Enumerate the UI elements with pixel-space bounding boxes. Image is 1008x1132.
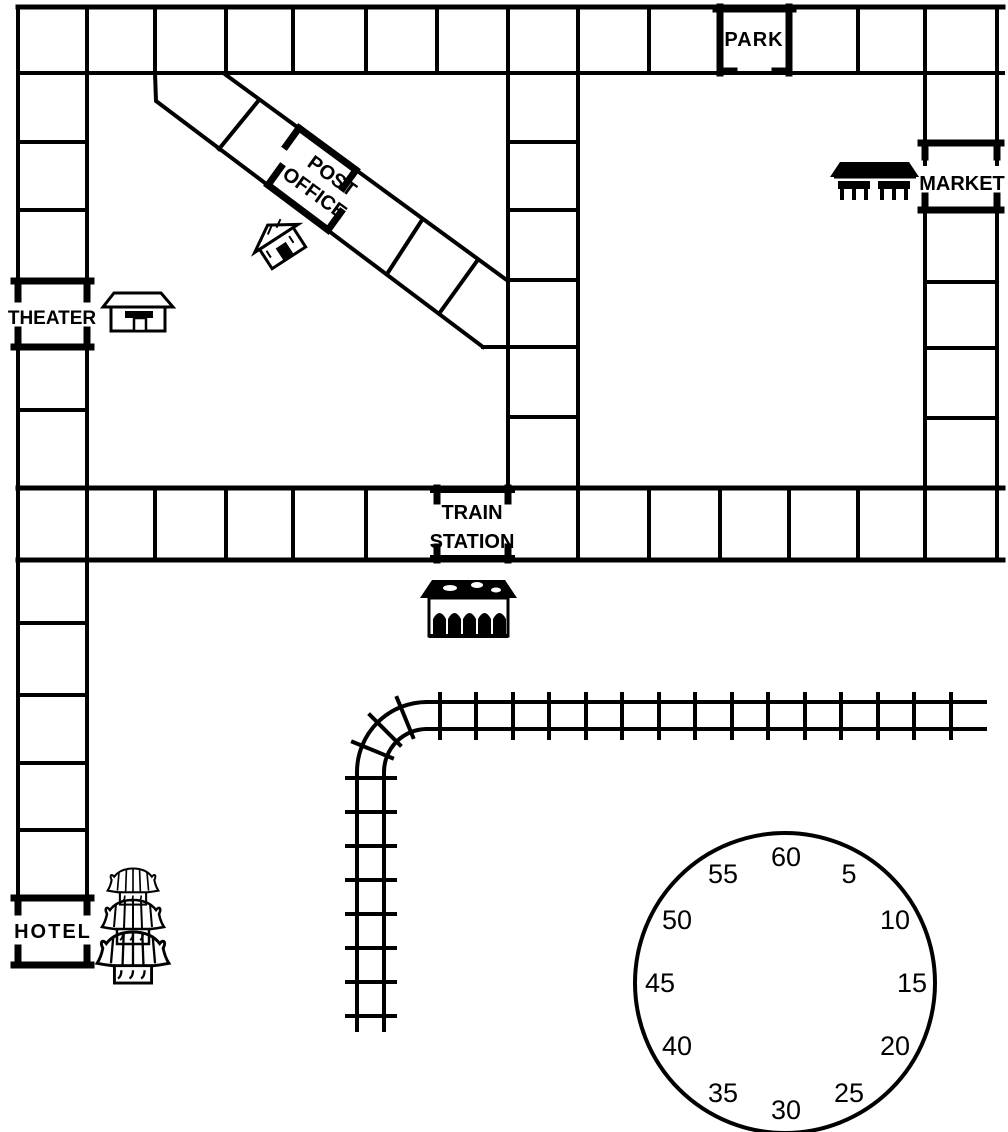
hotel-label: HOTEL bbox=[14, 921, 92, 943]
board-svg: 60 5 10 15 20 25 30 35 40 45 50 55 bbox=[0, 0, 1008, 1132]
timer-number-5: 5 bbox=[841, 859, 856, 889]
market-label: MARKET bbox=[919, 173, 1005, 195]
timer-number-35: 35 bbox=[708, 1078, 738, 1108]
timer-number-15: 15 bbox=[897, 968, 927, 998]
market-stall-icon bbox=[830, 162, 919, 200]
post-office-label: POST OFFICE bbox=[278, 144, 364, 224]
timer-number-30: 30 bbox=[771, 1095, 801, 1125]
timer-number-40: 40 bbox=[662, 1031, 692, 1061]
theater-label: THEATER bbox=[8, 308, 97, 329]
timer-number-50: 50 bbox=[662, 905, 692, 935]
timer-number-25: 25 bbox=[834, 1078, 864, 1108]
timer-number-55: 55 bbox=[708, 859, 738, 889]
train-station-building-icon bbox=[420, 580, 517, 636]
timer-number-10: 10 bbox=[880, 905, 910, 935]
timer-number-20: 20 bbox=[880, 1031, 910, 1061]
timer-dial-circle bbox=[635, 833, 935, 1132]
board-grid bbox=[18, 7, 1003, 898]
train-station-label-line2: STATION bbox=[430, 531, 515, 553]
pagoda-hotel-icon bbox=[97, 869, 169, 984]
middle-column-dividers bbox=[483, 142, 578, 417]
timer-number-60: 60 bbox=[771, 842, 801, 872]
train-station-label-line1: TRAIN bbox=[441, 502, 502, 524]
theater-building-icon bbox=[103, 293, 173, 331]
post-office-house-icon bbox=[246, 211, 311, 272]
game-board-map: 60 5 10 15 20 25 30 35 40 45 50 55 bbox=[0, 0, 1008, 1132]
timer-number-45: 45 bbox=[645, 968, 675, 998]
minute-timer-dial: 60 5 10 15 20 25 30 35 40 45 50 55 bbox=[635, 833, 935, 1132]
railroad-ties-vertical bbox=[347, 778, 395, 1016]
right-column-dividers bbox=[925, 282, 997, 418]
park-label: PARK bbox=[724, 29, 783, 51]
